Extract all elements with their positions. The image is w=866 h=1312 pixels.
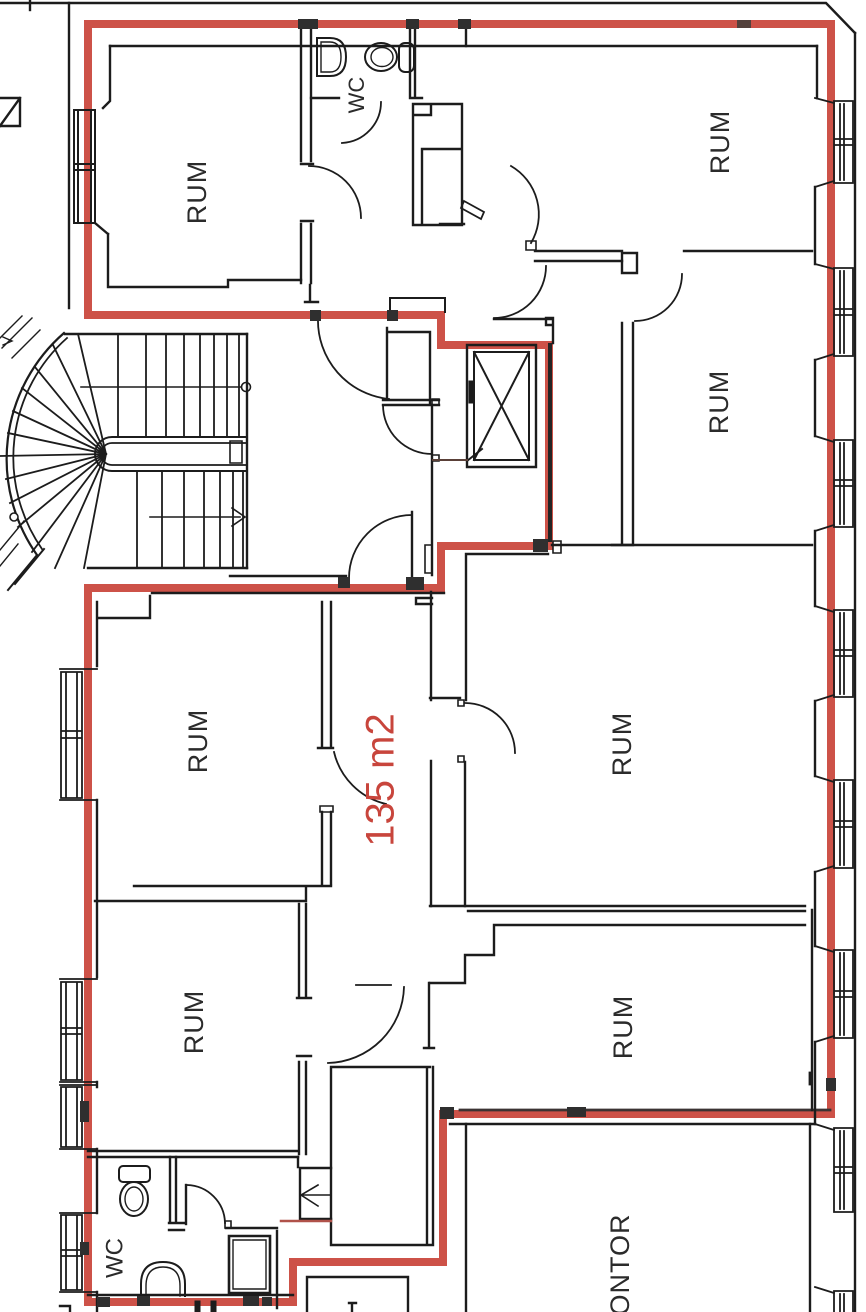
svg-text:135 m2: 135 m2 <box>359 713 403 846</box>
svg-text:WC: WC <box>344 77 369 114</box>
svg-text:WC: WC <box>101 1238 128 1278</box>
svg-text:RUM: RUM <box>182 160 212 225</box>
svg-text:RUM: RUM <box>608 995 638 1060</box>
svg-text:RUM: RUM <box>183 709 213 774</box>
svg-text:RUM: RUM <box>179 990 209 1055</box>
svg-text:RUM: RUM <box>607 712 637 777</box>
svg-text:KONTOR: KONTOR <box>605 1213 635 1312</box>
svg-text:RUM: RUM <box>705 110 735 175</box>
svg-text:RUM: RUM <box>704 370 734 435</box>
